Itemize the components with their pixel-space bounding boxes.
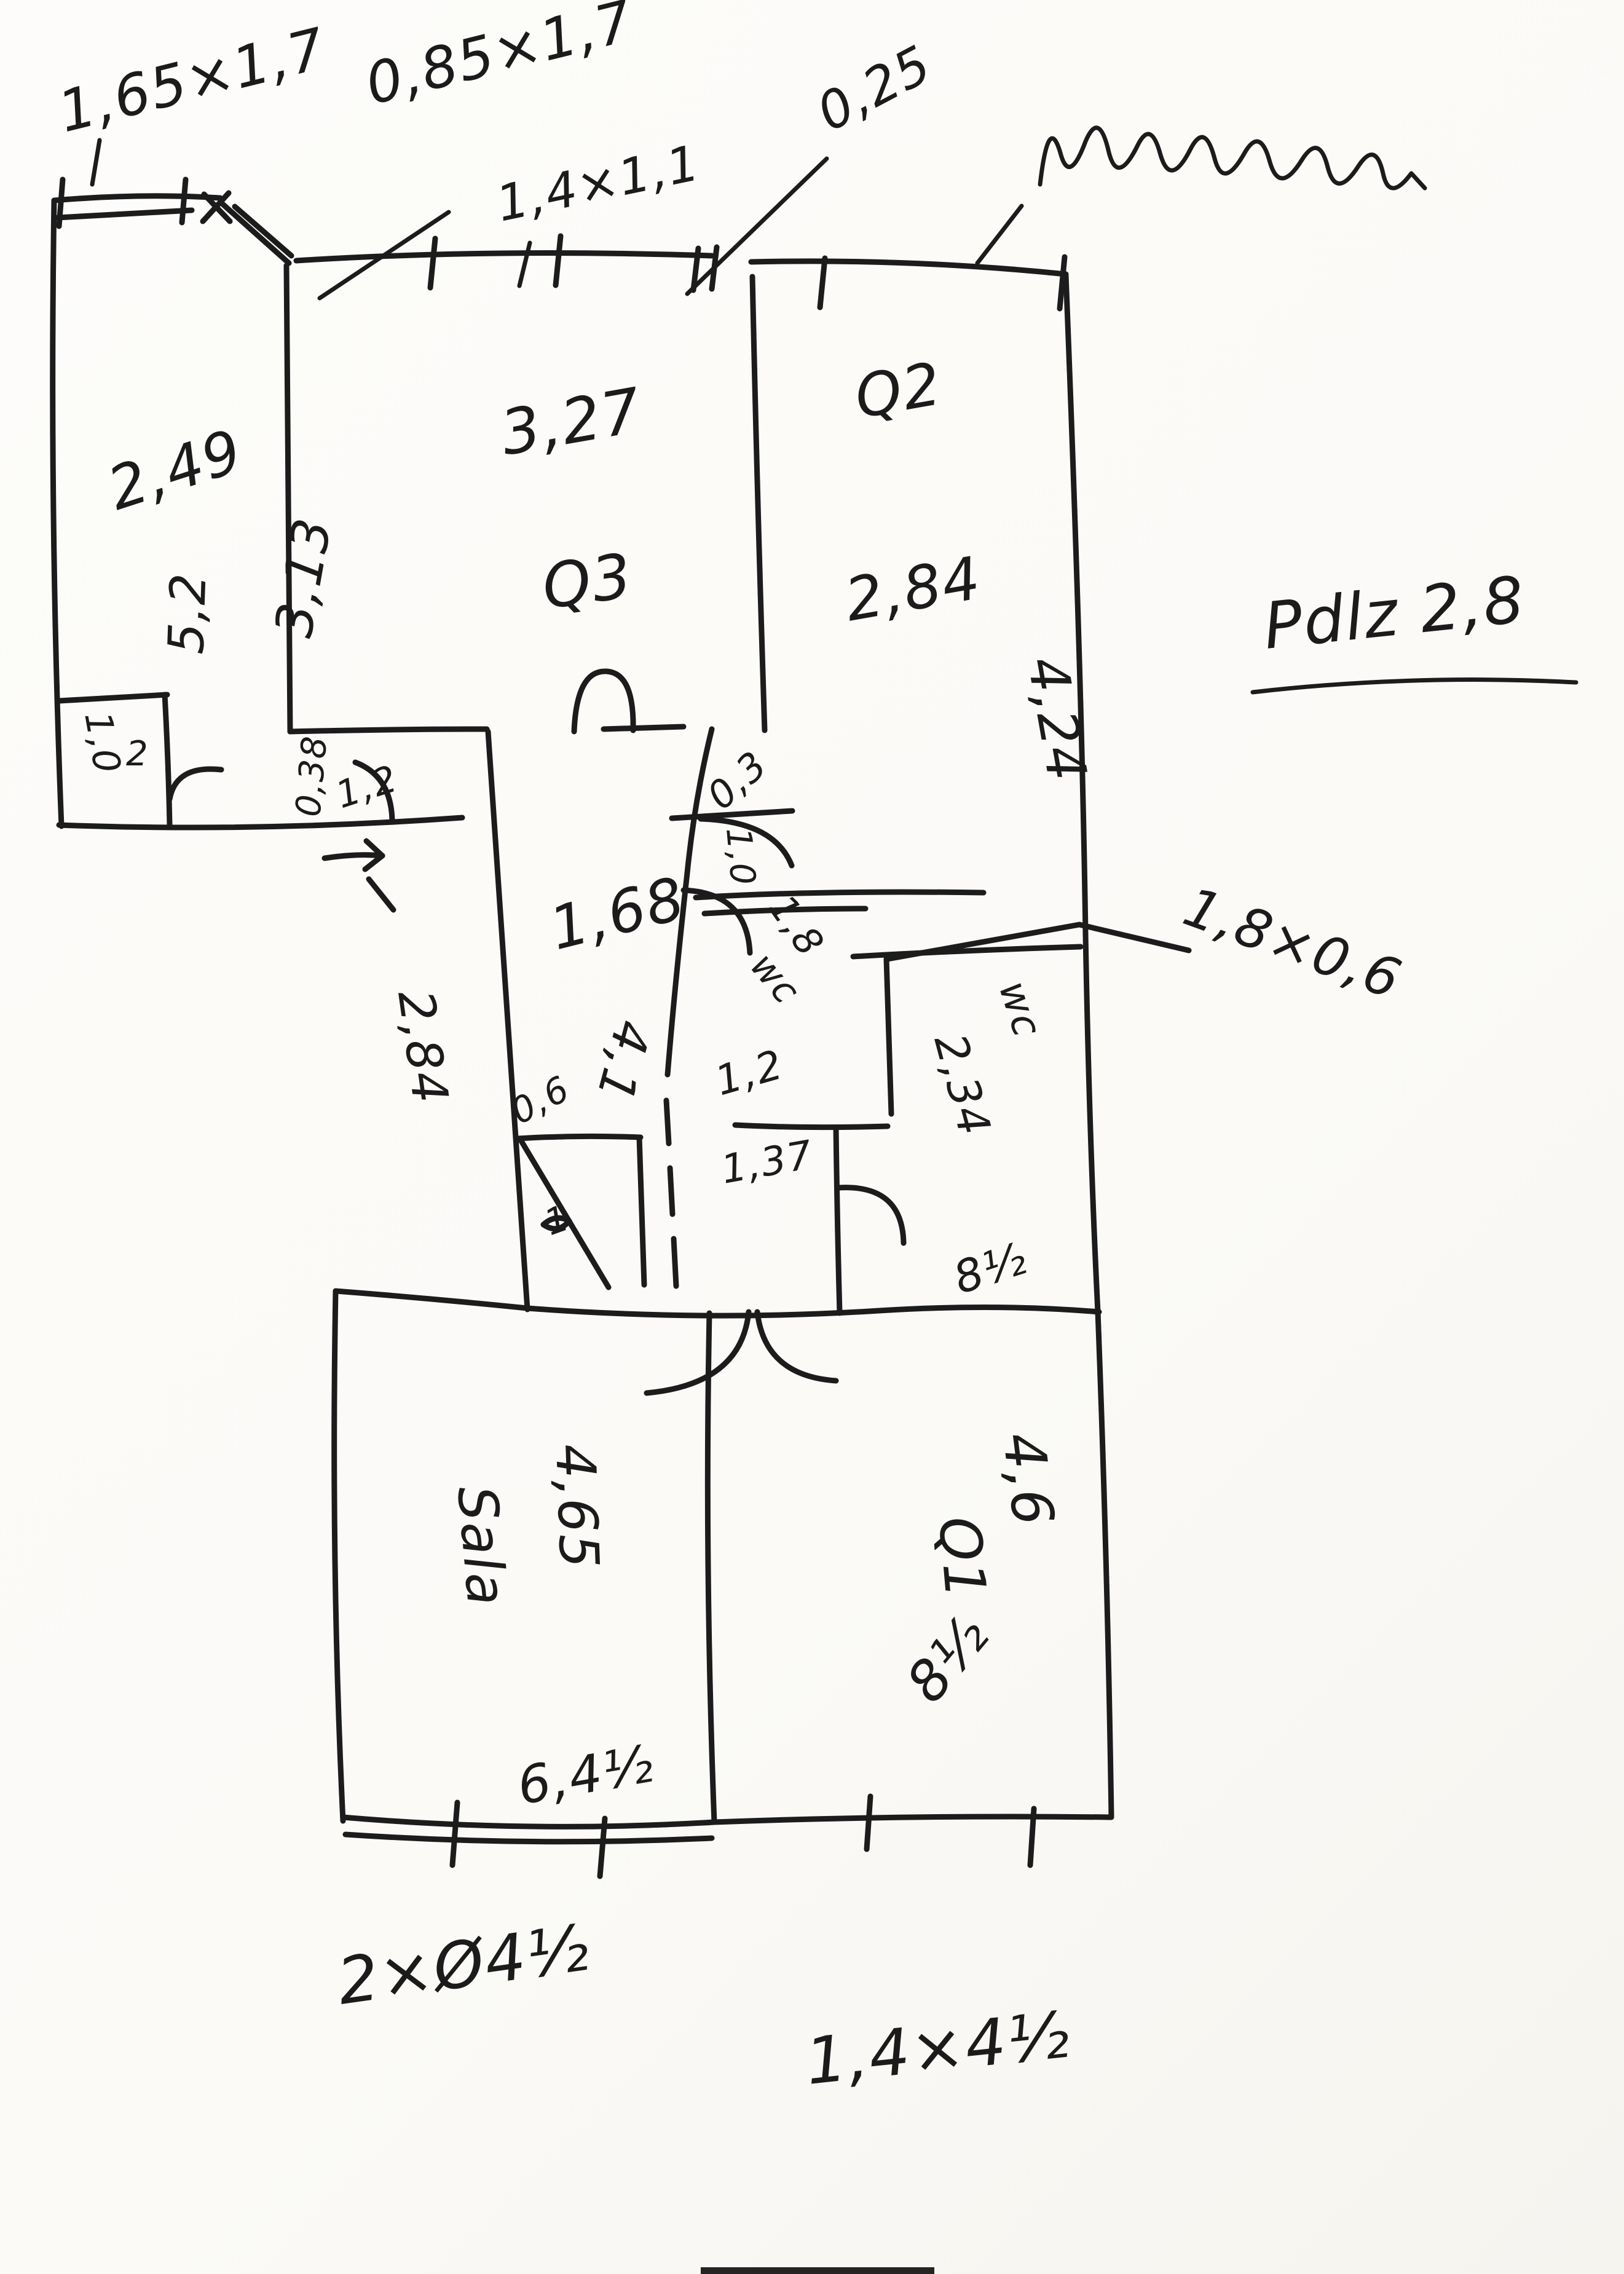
- leader-wc-window: [1079, 925, 1189, 950]
- bigwc-lower-divider: [836, 1127, 840, 1313]
- tick-topleft-window-1: [59, 180, 63, 226]
- shaft-top: [518, 1136, 641, 1139]
- label-closet-dim: 1,0: [76, 708, 129, 777]
- bigwc-leader-diагonal: [888, 925, 1079, 959]
- label-room1-width: 2,49: [100, 416, 251, 524]
- closet-right: [165, 695, 170, 825]
- entry-arrow-shaft: [325, 855, 382, 858]
- label-hall-length-2: 2,84: [387, 987, 459, 1108]
- bigwc-top: [853, 947, 1081, 957]
- sala-top-wall: [336, 1291, 527, 1308]
- leader-win-mid: [519, 243, 530, 286]
- closet-top: [59, 695, 167, 701]
- corridor-left-wall: [488, 732, 527, 1309]
- bottom-wall-right: [714, 1817, 1110, 1822]
- corridor-wc-bottom-wall: [527, 1307, 1099, 1316]
- label-q1-name: Q1: [926, 1514, 998, 1603]
- leader-025-b: [977, 206, 1022, 263]
- label-ceiling-note: Pdlz 2,8: [1260, 562, 1529, 664]
- wall-topleft-bottom: [59, 818, 462, 827]
- tick-bottom-4: [1030, 1809, 1034, 1865]
- smallwc-top: [696, 892, 983, 898]
- scan-edge-artifact: [701, 2267, 934, 2274]
- label-note-bottom-right: 1,4×4½: [802, 1997, 1074, 2099]
- tick-bottom-1: [452, 1802, 457, 1865]
- tick-middle-window-1: [430, 239, 435, 288]
- smallwc-door-arc: [684, 890, 750, 953]
- label-window-left-dim: 1,65×1,7: [52, 15, 333, 145]
- label-room3-name: Q2: [850, 349, 947, 432]
- tick-topleft-window-2: [182, 180, 186, 223]
- tick-bottom-3: [867, 1796, 870, 1849]
- bottom-wall-left-a: [343, 1817, 714, 1826]
- label-dim-038: 0,38: [288, 733, 335, 818]
- dimension-labels: 1,65×1,7 0,85×1,7 1,4×1,1 0,25 2,49 5,2 …: [52, 0, 1529, 2099]
- wall-right-long: [1066, 275, 1098, 1312]
- label-hall-width: 1,68: [543, 864, 692, 963]
- label-note-bottom-left: 2×Ø4½: [333, 1910, 594, 2019]
- corridor-right-dash-3: [674, 1239, 676, 1286]
- label-hall-door-dim: 1,0: [718, 826, 763, 888]
- corridor-right-wall-top: [687, 729, 712, 873]
- label-entry-door-dim: 0,85×1,7: [359, 0, 640, 117]
- label-closet-mark: 2: [126, 734, 149, 774]
- leader-025-a: [687, 159, 827, 294]
- label-q1-length: 4,6: [990, 1429, 1066, 1530]
- wall-topleft-left: [53, 200, 61, 826]
- label-room2-left-dim: 3,13: [263, 513, 343, 641]
- leader-win-left: [92, 140, 100, 184]
- wall-divider-mid-right: [752, 277, 765, 730]
- smallwc-bottom: [735, 1125, 888, 1127]
- label-room3-width: 2,84: [840, 543, 987, 635]
- label-wc-window-dim: 1,8×0,6: [1176, 875, 1410, 1012]
- smallwc-right: [886, 959, 891, 1114]
- corridor-top-bump: [574, 671, 633, 732]
- shaft-right: [639, 1137, 644, 1285]
- sala-left-wall: [334, 1291, 343, 1821]
- label-wall-025: 0,25: [807, 34, 941, 143]
- wall-topleft-top: [54, 196, 220, 200]
- note-underline: [1253, 680, 1576, 692]
- sketch-paper: 1,65×1,7 0,85×1,7 1,4×1,1 0,25 2,49 5,2 …: [0, 0, 1624, 2274]
- wall-topleft-top-double: [58, 210, 192, 218]
- bottom-wall-left-b: [345, 1834, 712, 1842]
- divider-bottom-rooms: [708, 1313, 714, 1822]
- wall-topleft-right: [286, 266, 290, 732]
- label-bigwc-name: wc: [990, 976, 1050, 1043]
- door-swing-topleft-b: [235, 207, 291, 256]
- q1-right-wall: [1098, 1312, 1111, 1817]
- door-arc-sala: [647, 1312, 749, 1393]
- label-hall-length: 4,1: [585, 1014, 661, 1108]
- tick-right-window-1: [820, 258, 825, 307]
- label-room3-height: 4,24: [1015, 652, 1099, 787]
- door-swing-topleft-a: [221, 203, 289, 263]
- label-room1-height: 5,2: [157, 571, 218, 655]
- wall-middle-top: [296, 253, 712, 261]
- label-window-mid-dim: 1,4×1,1: [492, 134, 705, 233]
- label-smallwc-length: 1,37: [718, 1132, 817, 1193]
- label-sala-length: 4,65: [543, 1443, 611, 1570]
- entry-arrow-hook: [369, 879, 393, 910]
- floorplan-sketch: 1,65×1,7 0,85×1,7 1,4×1,1 0,25 2,49 5,2 …: [0, 0, 1624, 2274]
- tick-middle-window-2: [556, 236, 561, 285]
- wall-middle-bottom-b: [604, 727, 684, 729]
- door-arc-q1: [757, 1312, 836, 1381]
- label-sala-name: Sala: [445, 1483, 519, 1609]
- label-room2-width: 3,27: [495, 374, 647, 469]
- corridor-right-dash-2: [670, 1168, 672, 1214]
- closet-door-arc: [170, 769, 221, 799]
- label-smallwc-width: 1,2: [710, 1041, 789, 1105]
- label-q1-area: 8½: [894, 1603, 1002, 1715]
- label-dim-03: 0,3: [698, 742, 776, 818]
- label-wc-area: 8½: [947, 1232, 1033, 1304]
- label-room2-name: Q3: [538, 540, 637, 623]
- corridor-right-dash-1: [666, 1100, 669, 1143]
- label-bigwc-length: 2,34: [924, 1028, 1001, 1142]
- wall-middle-bottom-a: [290, 729, 487, 732]
- bigwc-door-arc: [838, 1188, 904, 1243]
- illegible-scribble-icon: [1040, 128, 1425, 188]
- label-sala-width: 6,4½: [513, 1733, 658, 1816]
- wall-right-top: [751, 261, 1066, 274]
